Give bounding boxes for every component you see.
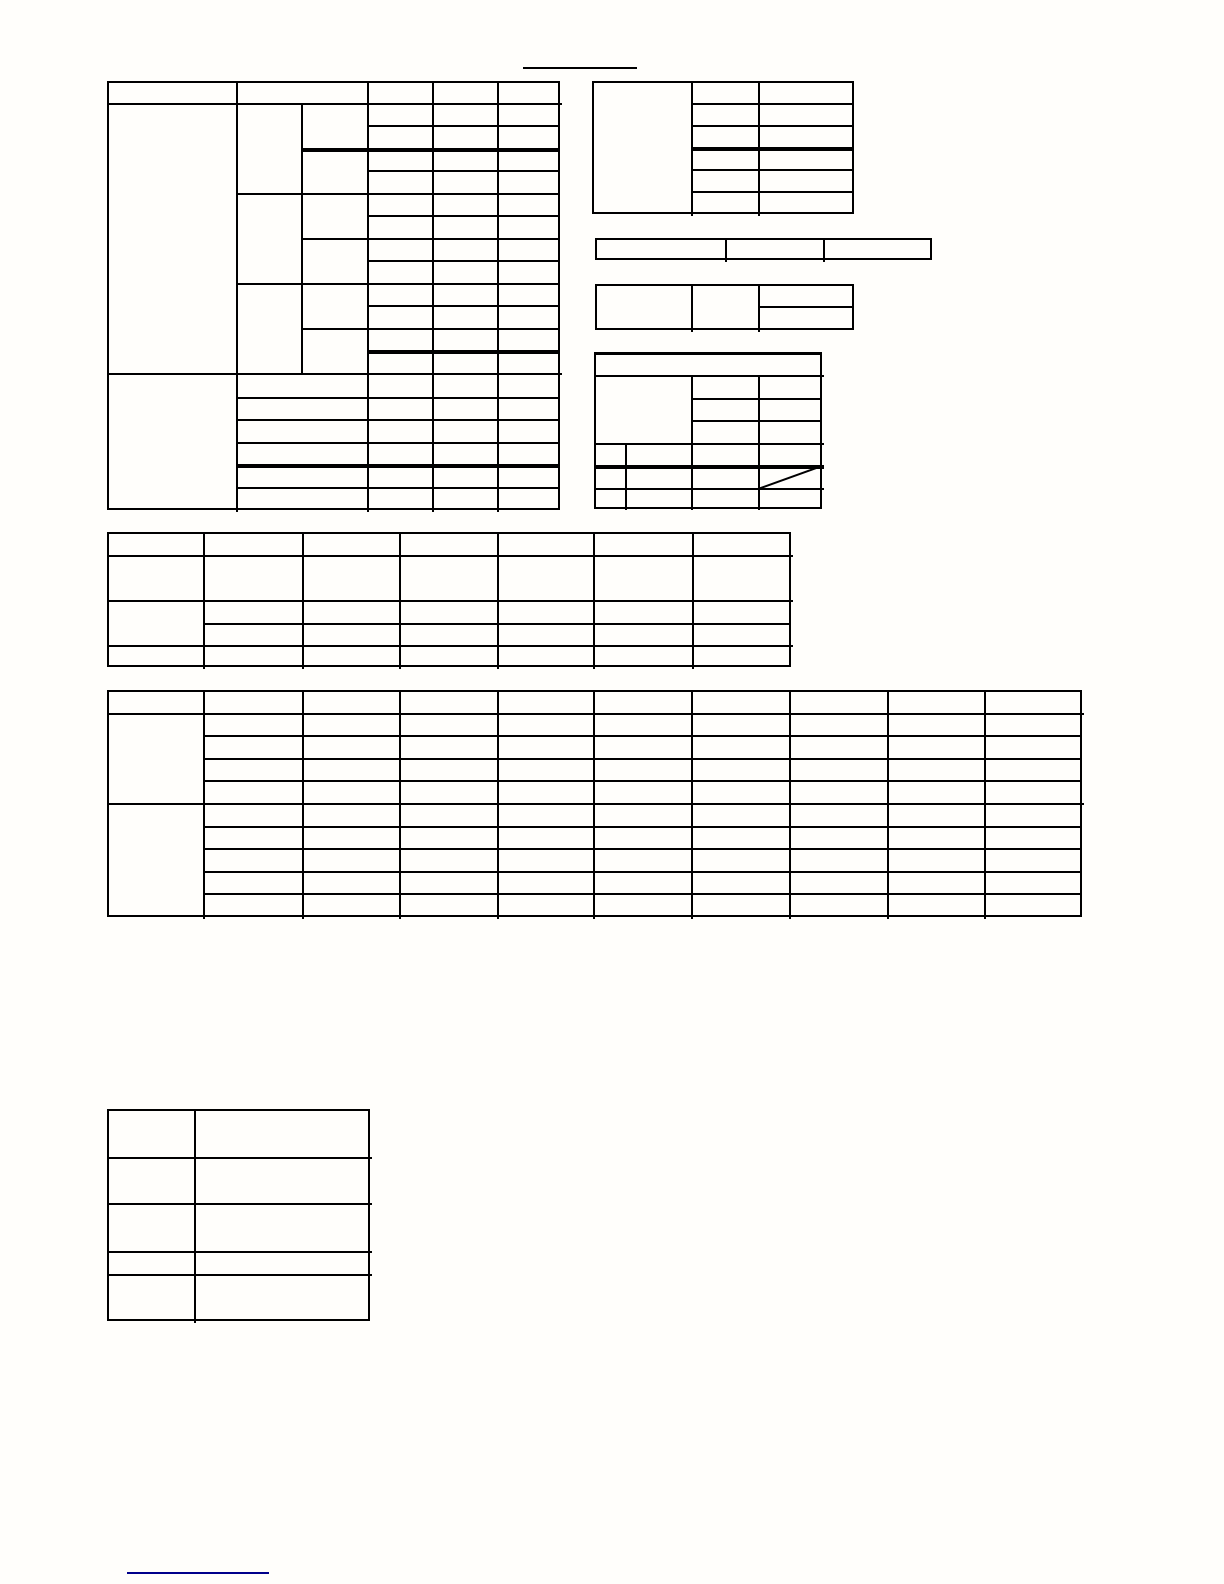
table-c-caption — [597, 240, 598, 241]
table-a — [107, 81, 560, 510]
table-h — [107, 1109, 370, 1321]
grid-line-h — [236, 419, 560, 421]
grid-line-v — [301, 103, 303, 373]
grid-line-h-thick — [691, 147, 854, 151]
grid-line-h — [109, 555, 793, 557]
grid-line-v — [399, 692, 401, 919]
grid-line-v — [691, 286, 693, 332]
grid-line-v — [497, 534, 499, 669]
grid-line-h-thick — [236, 464, 560, 468]
grid-line-v — [432, 83, 434, 512]
grid-line-h — [596, 488, 824, 490]
grid-line-h — [367, 260, 560, 262]
grid-line-v — [984, 692, 986, 919]
grid-line-h — [203, 893, 1082, 895]
grid-line-h — [236, 397, 560, 399]
grid-line-h — [758, 306, 854, 308]
table-f-caption — [109, 534, 110, 535]
grid-line-v — [399, 534, 401, 669]
grid-line-h — [203, 780, 1082, 782]
grid-line-v — [194, 1111, 196, 1323]
grid-line-v — [497, 83, 499, 512]
grid-line-v — [691, 83, 693, 216]
grid-line-v — [758, 83, 760, 216]
grid-line-h — [367, 215, 560, 217]
grid-line-h — [691, 420, 822, 422]
grid-line-h — [203, 758, 1082, 760]
grid-line-h — [203, 735, 1082, 737]
grid-line-h — [109, 803, 1084, 805]
title-underline-rule — [523, 67, 637, 69]
table-g-caption — [109, 692, 110, 693]
grid-line-v — [625, 443, 627, 510]
grid-line-h — [236, 283, 560, 285]
table-e — [594, 352, 822, 509]
grid-line-v — [887, 692, 889, 919]
grid-line-h — [691, 191, 854, 193]
grid-line-v — [302, 534, 304, 669]
table-h-caption — [109, 1111, 110, 1112]
grid-line-v — [367, 83, 369, 512]
grid-line-h — [109, 373, 562, 375]
grid-line-h — [109, 1203, 372, 1205]
grid-line-h — [367, 305, 560, 307]
grid-line-v — [758, 286, 760, 332]
grid-line-v — [203, 692, 205, 919]
grid-line-h — [109, 1274, 372, 1276]
table-b-caption — [594, 83, 595, 84]
grid-line-h — [691, 125, 854, 127]
table-b — [592, 81, 854, 214]
grid-line-h — [109, 600, 793, 602]
grid-line-h — [596, 443, 824, 445]
grid-line-h — [109, 713, 1084, 715]
grid-line-v — [302, 692, 304, 919]
grid-line-h — [367, 170, 560, 172]
grid-line-v — [203, 534, 205, 669]
table-f — [107, 532, 791, 667]
grid-line-h — [236, 487, 560, 489]
grid-line-h — [691, 169, 854, 171]
grid-line-v — [758, 375, 760, 510]
grid-line-h — [236, 442, 560, 444]
grid-line-h — [691, 398, 822, 400]
grid-line-h-thick — [301, 148, 560, 152]
diagonal-line — [758, 465, 823, 489]
grid-line-h — [301, 328, 560, 330]
grid-line-h — [203, 848, 1082, 850]
table-d — [595, 284, 854, 330]
grid-line-h — [109, 1251, 372, 1253]
grid-line-h — [109, 645, 793, 647]
table-a-caption — [109, 83, 110, 84]
grid-line-v — [593, 534, 595, 669]
grid-line-h — [367, 125, 560, 127]
grid-line-v — [497, 692, 499, 919]
grid-line-h — [236, 193, 560, 195]
grid-line-h — [596, 375, 824, 377]
grid-line-v — [725, 240, 727, 262]
grid-line-v — [691, 375, 693, 510]
table-g — [107, 690, 1082, 917]
footer-link-rule — [127, 1572, 269, 1574]
table-e-caption — [596, 355, 597, 356]
document-page — [0, 0, 1224, 1584]
grid-line-h — [301, 238, 560, 240]
table-d-caption — [597, 286, 598, 287]
grid-line-h — [203, 871, 1082, 873]
grid-line-v — [692, 534, 694, 669]
grid-line-v — [593, 692, 595, 919]
grid-line-h-thick — [367, 350, 560, 354]
grid-line-v — [789, 692, 791, 919]
grid-line-v — [823, 240, 825, 262]
grid-line-h — [109, 1157, 372, 1159]
grid-line-h — [109, 103, 562, 105]
grid-line-h — [203, 826, 1082, 828]
table-c — [595, 238, 932, 260]
grid-line-v — [236, 83, 238, 512]
grid-line-h — [691, 103, 854, 105]
grid-line-v — [691, 692, 693, 919]
grid-line-h-thick — [596, 465, 824, 469]
